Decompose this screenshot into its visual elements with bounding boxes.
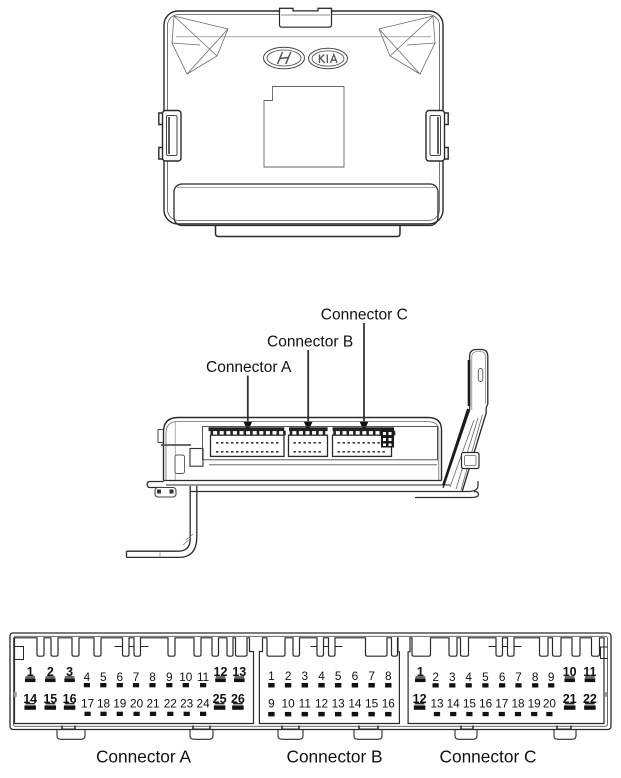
svg-text:18: 18 — [97, 697, 111, 711]
svg-text:9: 9 — [166, 670, 173, 684]
svg-text:20: 20 — [543, 697, 557, 711]
svg-text:14: 14 — [348, 697, 362, 711]
svg-text:11: 11 — [197, 670, 209, 684]
svg-text:9: 9 — [548, 670, 555, 684]
svg-text:8: 8 — [532, 670, 539, 684]
svg-text:15: 15 — [463, 697, 477, 711]
svg-text:3: 3 — [449, 670, 456, 684]
svg-text:4: 4 — [84, 670, 91, 684]
svg-text:20: 20 — [130, 697, 144, 711]
svg-text:Connector C: Connector C — [439, 747, 536, 767]
svg-text:5: 5 — [100, 670, 107, 684]
svg-text:4: 4 — [465, 670, 472, 684]
svg-text:Connector A: Connector A — [206, 359, 292, 376]
svg-text:23: 23 — [180, 697, 194, 711]
svg-text:8: 8 — [149, 670, 156, 684]
svg-text:7: 7 — [515, 670, 522, 684]
svg-text:18: 18 — [511, 697, 525, 711]
svg-text:9: 9 — [268, 697, 275, 711]
svg-text:Connector C: Connector C — [321, 307, 408, 324]
svg-text:2: 2 — [285, 669, 292, 683]
svg-text:10: 10 — [179, 670, 193, 684]
svg-text:3: 3 — [302, 669, 309, 683]
svg-text:Connector B: Connector B — [286, 747, 382, 767]
svg-text:1: 1 — [268, 669, 275, 683]
svg-text:10: 10 — [282, 697, 296, 711]
svg-text:4: 4 — [318, 669, 325, 683]
svg-text:2: 2 — [432, 670, 439, 684]
svg-text:19: 19 — [528, 697, 541, 711]
svg-text:6: 6 — [499, 670, 506, 684]
svg-text:Connector B: Connector B — [267, 334, 353, 351]
svg-text:7: 7 — [133, 670, 140, 684]
svg-text:19: 19 — [113, 697, 126, 711]
svg-text:16: 16 — [479, 697, 493, 711]
svg-text:6: 6 — [117, 670, 124, 684]
svg-text:24: 24 — [197, 697, 211, 711]
svg-text:13: 13 — [430, 697, 444, 711]
svg-text:7: 7 — [368, 669, 375, 683]
svg-text:13: 13 — [332, 697, 346, 711]
svg-text:8: 8 — [385, 669, 392, 683]
svg-text:12: 12 — [315, 697, 328, 711]
svg-text:11: 11 — [299, 697, 311, 711]
svg-text:16: 16 — [382, 697, 396, 711]
svg-text:17: 17 — [495, 697, 508, 711]
svg-text:5: 5 — [482, 670, 489, 684]
svg-text:22: 22 — [164, 697, 177, 711]
svg-text:5: 5 — [335, 669, 342, 683]
svg-text:14: 14 — [447, 697, 461, 711]
svg-text:Connector A: Connector A — [96, 747, 192, 767]
svg-text:17: 17 — [81, 697, 94, 711]
svg-text:6: 6 — [352, 669, 359, 683]
svg-text:21: 21 — [146, 697, 159, 711]
svg-text:15: 15 — [365, 697, 379, 711]
